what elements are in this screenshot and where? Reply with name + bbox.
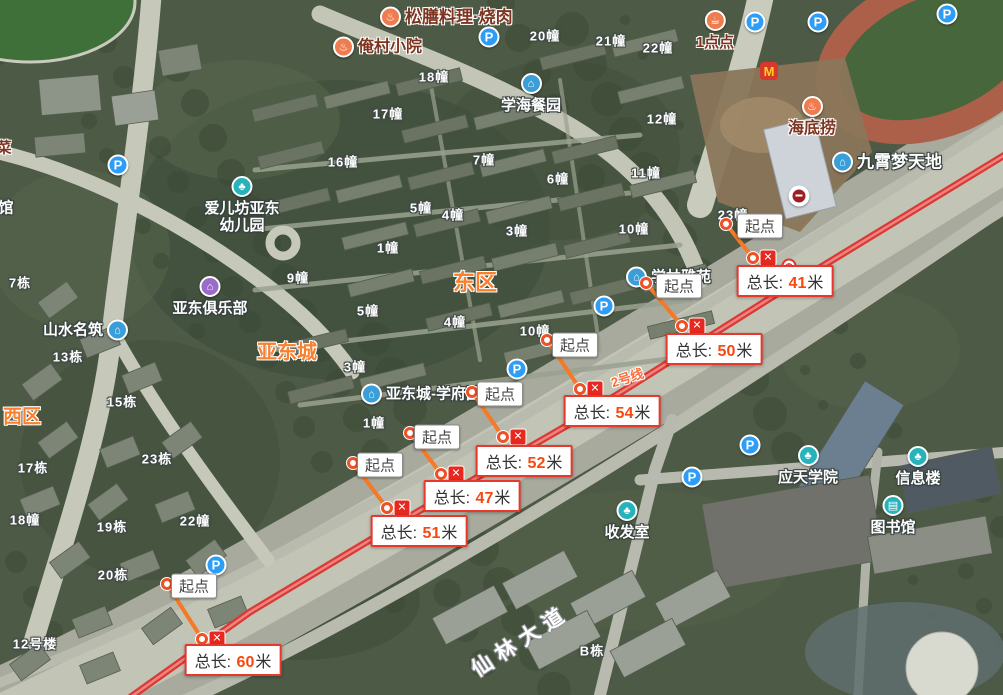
total-prefix: 总长: bbox=[676, 343, 717, 360]
close-measure-icon[interactable]: ✕ bbox=[395, 501, 410, 516]
close-measure-icon[interactable]: ✕ bbox=[511, 430, 526, 445]
total-unit: 米 bbox=[255, 654, 271, 671]
total-value: 47 bbox=[475, 490, 495, 507]
total-prefix: 总长: bbox=[486, 455, 527, 472]
total-prefix: 总长: bbox=[747, 275, 788, 292]
total-value: 52 bbox=[527, 455, 547, 472]
total-unit: 米 bbox=[546, 455, 562, 472]
total-unit: 米 bbox=[736, 343, 752, 360]
total-unit: 米 bbox=[807, 275, 823, 292]
start-point-tooltip: 起点 bbox=[414, 425, 460, 450]
total-prefix: 总长: bbox=[381, 525, 422, 542]
total-unit: 米 bbox=[634, 405, 650, 422]
total-length-label: 总长: 41米 bbox=[737, 265, 834, 297]
total-prefix: 总长: bbox=[434, 490, 475, 507]
total-length-label: 总长: 50米 bbox=[666, 333, 763, 365]
close-measure-icon[interactable]: ✕ bbox=[761, 251, 776, 266]
total-prefix: 总长: bbox=[574, 405, 615, 422]
total-unit: 米 bbox=[441, 525, 457, 542]
measure-endpoint[interactable] bbox=[720, 218, 732, 230]
total-length-label: 总长: 52米 bbox=[476, 445, 573, 477]
start-point-tooltip: 起点 bbox=[737, 214, 783, 239]
total-value: 41 bbox=[788, 275, 808, 292]
measure-endpoint[interactable] bbox=[676, 320, 688, 332]
satellite-map[interactable]: 20幢21幢22幢18幢17幢16幢7幢6幢12幢11幢5幢4幢3幢1幢9幢5幢… bbox=[0, 0, 1003, 695]
total-value: 54 bbox=[615, 405, 635, 422]
measure-endpoint[interactable] bbox=[435, 468, 447, 480]
total-unit: 米 bbox=[494, 490, 510, 507]
total-length-label: 总长: 51米 bbox=[371, 515, 468, 547]
start-point-tooltip: 起点 bbox=[357, 453, 403, 478]
measure-endpoint[interactable] bbox=[497, 431, 509, 443]
total-value: 51 bbox=[422, 525, 442, 542]
measure-endpoint[interactable] bbox=[381, 502, 393, 514]
total-length-label: 总长: 60米 bbox=[185, 644, 282, 676]
close-measure-icon[interactable]: ✕ bbox=[690, 319, 705, 334]
total-length-label: 总长: 54米 bbox=[564, 395, 661, 427]
total-prefix: 总长: bbox=[195, 654, 236, 671]
total-value: 60 bbox=[236, 654, 256, 671]
start-point-tooltip: 起点 bbox=[552, 333, 598, 358]
total-value: 50 bbox=[717, 343, 737, 360]
measure-endpoint[interactable] bbox=[640, 277, 652, 289]
measure-endpoint[interactable] bbox=[747, 252, 759, 264]
start-point-tooltip: 起点 bbox=[656, 274, 702, 299]
measurement-lines bbox=[0, 0, 1003, 695]
start-point-tooltip: 起点 bbox=[171, 574, 217, 599]
measure-endpoint[interactable] bbox=[574, 383, 586, 395]
total-length-label: 总长: 47米 bbox=[424, 480, 521, 512]
start-point-tooltip: 起点 bbox=[477, 382, 523, 407]
